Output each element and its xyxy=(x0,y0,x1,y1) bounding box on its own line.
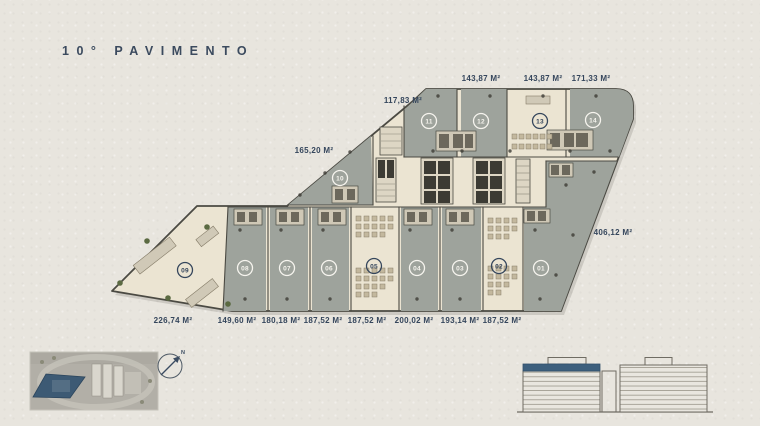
unit-09-area-label: 226,74 M² xyxy=(154,316,193,325)
unit-05-area-label: 187,52 M² xyxy=(348,316,387,325)
unit-11-area-label: 117,83 M² xyxy=(384,96,422,105)
unit-12-area-label: 143,87 M² xyxy=(462,74,501,83)
svg-text:10: 10 xyxy=(336,175,344,182)
unit-04-area-label: 200,02 M² xyxy=(395,316,434,325)
site-aerial-photo xyxy=(30,352,158,410)
svg-text:03: 03 xyxy=(456,265,464,272)
highlighted-floor-bar xyxy=(523,364,600,371)
svg-text:13: 13 xyxy=(536,118,544,125)
elevation-right-building xyxy=(620,358,707,413)
compass-north-label: N xyxy=(181,350,185,356)
stairwell-left xyxy=(376,158,396,202)
left-building-body xyxy=(523,371,600,412)
svg-text:06: 06 xyxy=(325,265,333,272)
svg-text:12: 12 xyxy=(477,118,485,125)
svg-text:08: 08 xyxy=(241,265,249,272)
svg-text:04: 04 xyxy=(413,265,421,272)
svg-text:11: 11 xyxy=(425,118,432,125)
svg-text:07: 07 xyxy=(283,265,291,272)
unit-06-area-label: 187,52 M² xyxy=(304,316,343,325)
elevation-connector xyxy=(602,371,616,412)
unit-10-area-label: 165,20 M² xyxy=(295,146,334,155)
floor-plan-page: 10° PAVIMENTO xyxy=(0,0,760,426)
unit-02-area-label: 187,52 M² xyxy=(483,316,522,325)
plan-canvas: 01 02 03 04 05 06 07 08 09 10 xyxy=(0,0,760,426)
svg-text:01: 01 xyxy=(537,265,545,272)
compass-needle-icon xyxy=(161,359,177,375)
floor-plan: 01 02 03 04 05 06 07 08 09 10 xyxy=(112,74,636,325)
shaft-upper xyxy=(380,127,402,155)
elevator-bank-a xyxy=(421,158,453,204)
left-building-rooftop xyxy=(548,358,586,365)
unit-03-area-label: 193,14 M² xyxy=(441,316,480,325)
building-elevation-indicator xyxy=(517,358,713,413)
right-building-rooftop xyxy=(645,358,672,366)
unit-07-area-label: 180,18 M² xyxy=(262,316,301,325)
elevator-bank-b xyxy=(473,158,505,204)
svg-text:09: 09 xyxy=(181,267,189,274)
unit-14-area-label: 171,33 M² xyxy=(572,74,611,83)
right-building-body xyxy=(620,365,707,412)
unit-13-area-label: 143,87 M² xyxy=(524,74,563,83)
stairwell-right xyxy=(516,159,530,203)
service-core-unit-01 xyxy=(549,163,573,177)
svg-text:02: 02 xyxy=(495,263,503,270)
unit-08-area-label: 149,60 M² xyxy=(218,316,257,325)
svg-text:14: 14 xyxy=(589,117,597,124)
svg-text:05: 05 xyxy=(370,263,378,270)
north-compass: N xyxy=(158,350,185,378)
elevation-left-building xyxy=(523,358,600,413)
unit-01-area-label: 406,12 M² xyxy=(594,228,633,237)
